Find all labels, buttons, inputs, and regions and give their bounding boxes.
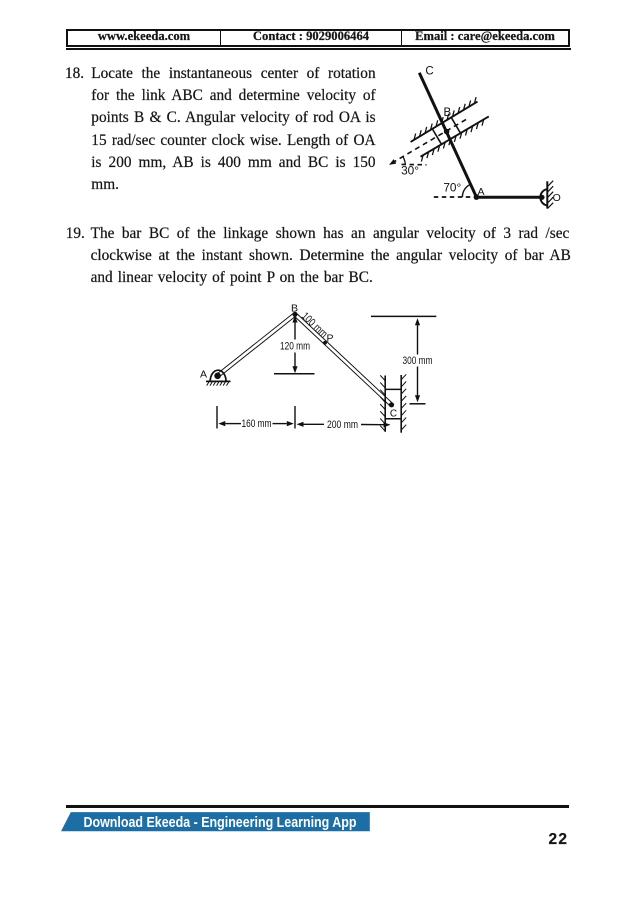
svg-text:30°: 30° <box>401 164 419 178</box>
svg-text:160 mm: 160 mm <box>242 418 272 430</box>
svg-text:C: C <box>390 409 397 420</box>
svg-text:O: O <box>553 192 561 204</box>
svg-text:200 mm: 200 mm <box>327 419 358 431</box>
svg-text:B: B <box>443 107 451 119</box>
svg-text:B: B <box>291 302 298 314</box>
svg-text:P: P <box>326 332 333 344</box>
svg-text:70°: 70° <box>443 180 461 194</box>
svg-text:A: A <box>200 369 207 381</box>
svg-text:C: C <box>425 65 433 77</box>
svg-text:Download Ekeeda - Engineering: Download Ekeeda - Engineering Learning A… <box>84 815 357 831</box>
svg-text:120 mm: 120 mm <box>280 341 310 353</box>
svg-text:300 mm: 300 mm <box>403 355 433 367</box>
